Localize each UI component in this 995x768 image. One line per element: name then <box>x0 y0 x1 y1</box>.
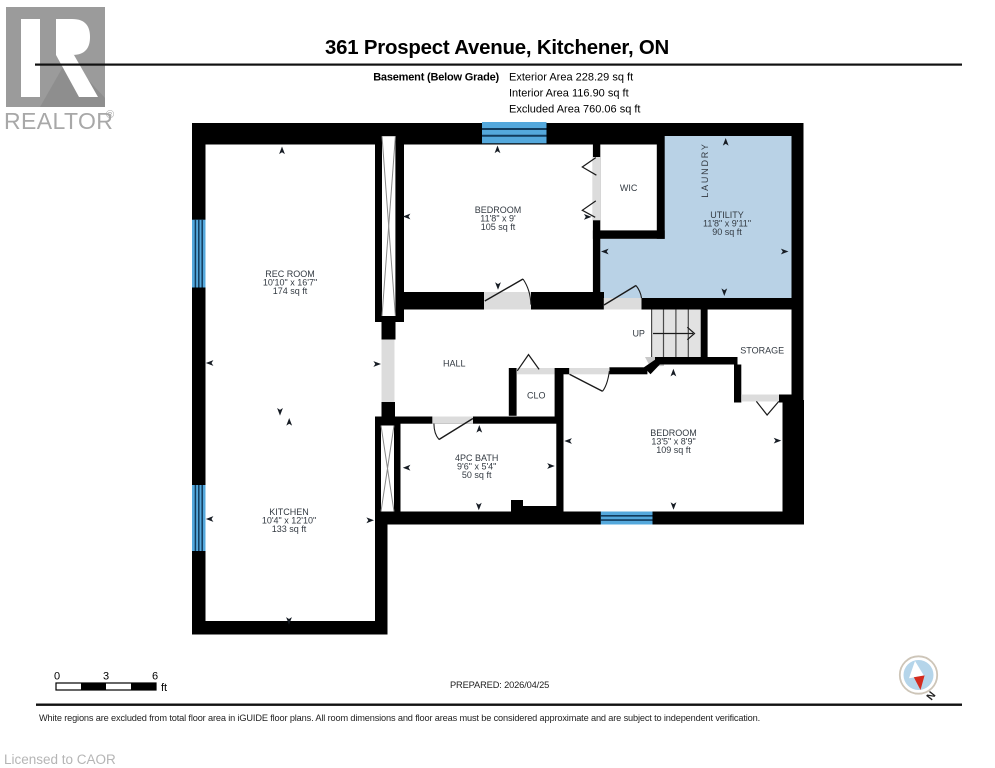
svg-text:Licensed to CAOR: Licensed to CAOR <box>4 752 116 767</box>
svg-text:WIC: WIC <box>620 183 638 193</box>
svg-text:6: 6 <box>152 671 158 683</box>
svg-text:0: 0 <box>54 671 60 683</box>
svg-text:CLO: CLO <box>527 390 546 400</box>
svg-text:HALL: HALL <box>443 358 466 368</box>
svg-text:®: ® <box>106 109 114 121</box>
svg-text:109 sq ft: 109 sq ft <box>656 445 691 455</box>
svg-text:UP: UP <box>632 329 645 339</box>
svg-text:LAUNDRY: LAUNDRY <box>700 142 710 197</box>
svg-text:Interior Area 116.90 sq ft: Interior Area 116.90 sq ft <box>509 88 629 100</box>
svg-text:3: 3 <box>103 671 109 683</box>
svg-text:Exterior Area 228.29 sq ft: Exterior Area 228.29 sq ft <box>509 72 633 84</box>
svg-text:PREPARED: 2026/04/25: PREPARED: 2026/04/25 <box>450 680 549 690</box>
svg-text:REALTOR: REALTOR <box>4 108 113 134</box>
svg-text:Basement (Below Grade): Basement (Below Grade) <box>373 72 499 84</box>
svg-text:90 sq ft: 90 sq ft <box>712 227 742 237</box>
svg-text:ft: ft <box>161 682 167 694</box>
svg-text:STORAGE: STORAGE <box>740 346 784 356</box>
svg-text:105 sq ft: 105 sq ft <box>481 222 516 232</box>
svg-text:361 Prospect Avenue, Kitchener: 361 Prospect Avenue, Kitchener, ON <box>325 37 669 59</box>
svg-text:174 sq ft: 174 sq ft <box>273 286 308 296</box>
svg-text:133 sq ft: 133 sq ft <box>272 524 307 534</box>
svg-text:Excluded Area 760.06 sq ft: Excluded Area 760.06 sq ft <box>509 104 640 116</box>
svg-text:White regions are excluded fro: White regions are excluded from total fl… <box>39 713 760 723</box>
svg-text:50 sq ft: 50 sq ft <box>462 470 492 480</box>
